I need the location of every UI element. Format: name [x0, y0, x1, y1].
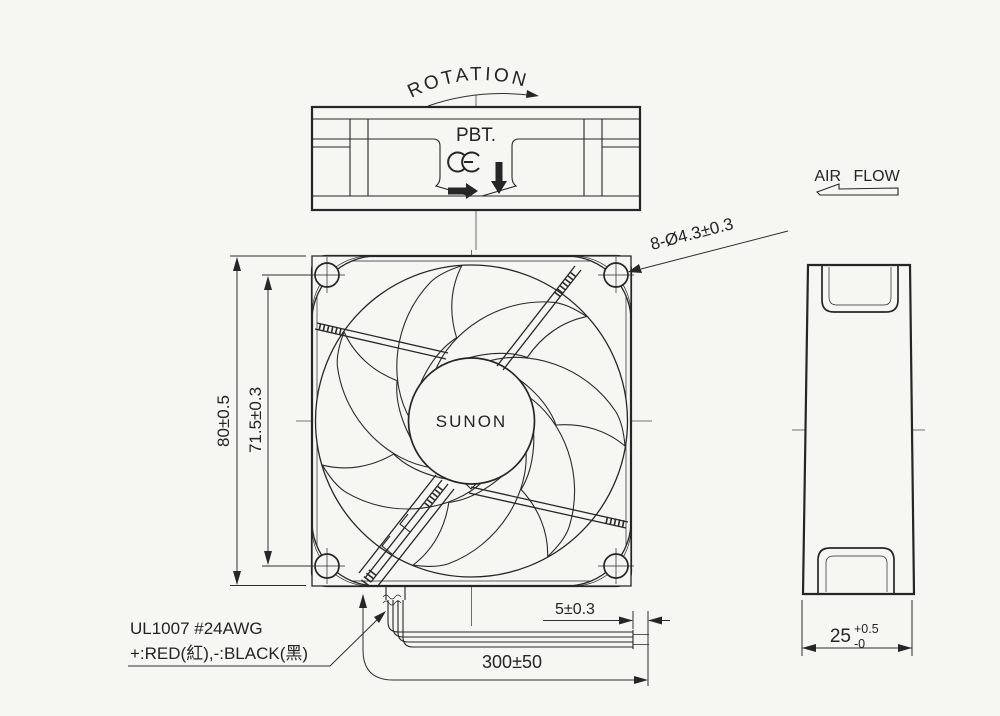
brand-label: SUNON — [436, 412, 507, 431]
fan-technical-drawing: ROTATION PBT. — [0, 0, 1000, 716]
air-flow-label: AIR FLOW — [814, 168, 900, 185]
dim-lead-length: 300±50 — [359, 594, 648, 684]
side-view — [803, 265, 914, 594]
lead-length-label: 300±50 — [482, 652, 542, 672]
depth-label: 25 — [830, 626, 851, 647]
front-view: SUNON — [306, 256, 634, 587]
frame-size-label: 80±0.5 — [214, 395, 233, 447]
hole-pitch-label: 71.5±0.3 — [246, 387, 265, 453]
side-view-outline — [803, 265, 914, 594]
lead-wire-polarity-label: +:RED(紅),-:BLACK(黑) — [130, 644, 308, 663]
wire-line-1 — [388, 600, 633, 632]
dim-strip-length: 5±0.3 — [543, 601, 670, 686]
rotation-direction-arc — [428, 94, 536, 106]
top-view-outline — [312, 107, 640, 210]
strain-relief — [386, 586, 405, 600]
top-view: PBT. — [312, 107, 640, 210]
lead-wire-callout: UL1007 #24AWG +:RED(紅),-:BLACK(黑) — [128, 611, 386, 666]
depth-tol-minus-label: -0 — [854, 637, 865, 651]
material-label: PBT. — [456, 125, 496, 146]
dim-depth: 25 +0.5 -0 — [802, 600, 912, 656]
dim-mounting-holes: 8-Ø4.3±0.3 — [628, 214, 788, 273]
wire-line-4 — [403, 600, 633, 647]
air-flow-arrow-icon — [817, 184, 898, 195]
rotation-callout: ROTATION — [404, 64, 539, 106]
lead-wire-spec-label: UL1007 #24AWG — [130, 619, 263, 638]
depth-tol-plus-label: +0.5 — [854, 622, 879, 636]
dim-hole-pitch: 71.5±0.3 — [246, 275, 313, 566]
drawing-canvas: ROTATION PBT. — [0, 0, 1000, 716]
air-flow-callout: AIR FLOW — [814, 168, 900, 195]
strip-length-label: 5±0.3 — [555, 601, 595, 618]
bare-wire-ends — [633, 635, 649, 645]
lead-wires — [383, 586, 649, 649]
rotation-arc-arrowhead-icon — [526, 90, 539, 98]
